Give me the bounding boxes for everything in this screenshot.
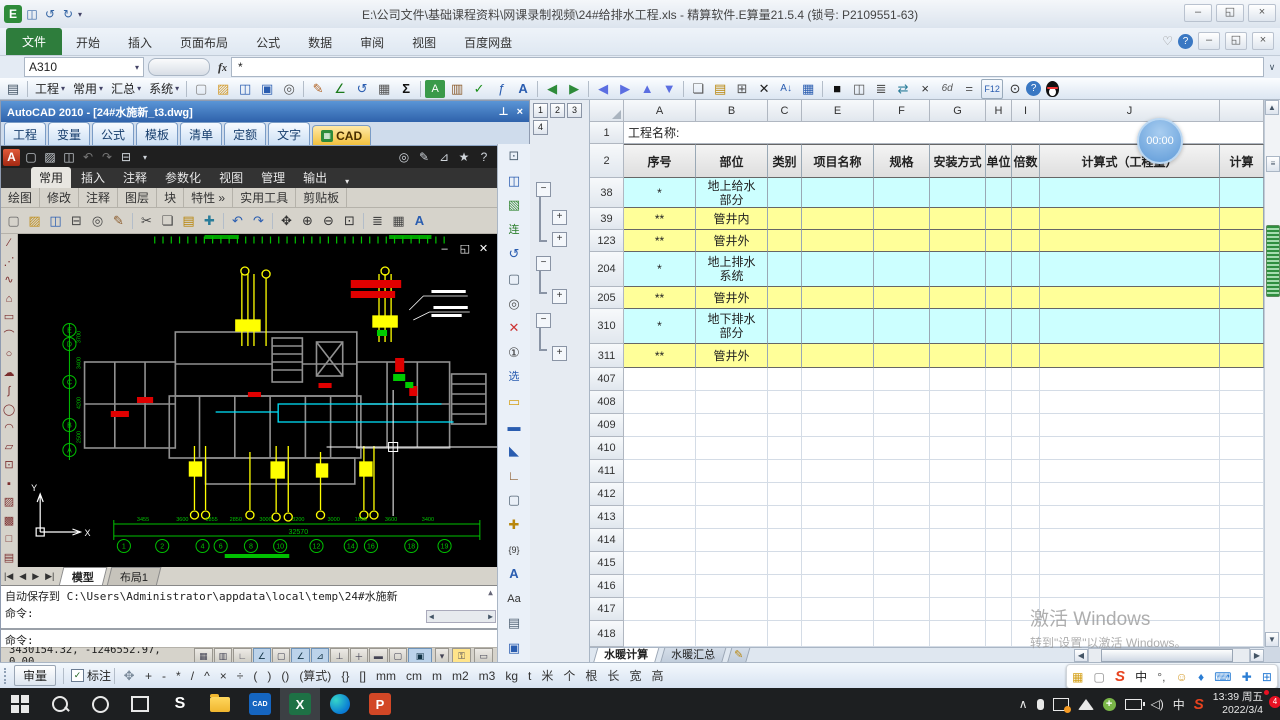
- make-block-icon[interactable]: ⊡: [4, 456, 13, 475]
- polygon-icon[interactable]: ⌂: [6, 290, 13, 309]
- grid-cell[interactable]: [986, 529, 1012, 552]
- header-cell[interactable]: 序号: [624, 144, 696, 178]
- header-cell[interactable]: 单位: [986, 144, 1012, 178]
- grid-cell[interactable]: [1012, 552, 1040, 575]
- cortana-button[interactable]: [80, 688, 120, 720]
- move-left-icon[interactable]: ◀: [593, 80, 613, 98]
- cad-app-button[interactable]: CAD: [240, 688, 280, 720]
- grid-cell[interactable]: [986, 414, 1012, 437]
- grid-cell[interactable]: [1220, 460, 1264, 483]
- grid-cell[interactable]: [802, 621, 874, 647]
- spline-icon[interactable]: ∫: [7, 382, 10, 401]
- column-header[interactable]: C: [768, 100, 802, 122]
- grid-cell[interactable]: [1040, 437, 1220, 460]
- grid-cell[interactable]: [802, 460, 874, 483]
- tray-wifi-icon[interactable]: [1078, 699, 1094, 710]
- tb-pan-icon[interactable]: ✥: [276, 211, 297, 231]
- first-layout-icon[interactable]: |◀: [1, 571, 16, 582]
- ime-mic-icon[interactable]: ♦: [1198, 670, 1204, 684]
- ime-skin-icon[interactable]: ✚: [1242, 670, 1252, 684]
- tab-wenzi[interactable]: 文字: [268, 122, 310, 145]
- unit-button[interactable]: 根: [580, 666, 602, 685]
- unit-button[interactable]: cm: [401, 668, 427, 684]
- column-header[interactable]: F: [874, 100, 930, 122]
- grid-cell[interactable]: [986, 368, 1012, 391]
- calculator-icon[interactable]: ▦: [374, 80, 394, 98]
- header-cell[interactable]: 计算: [1220, 144, 1264, 178]
- unit-button[interactable]: ^: [199, 668, 215, 684]
- grid-cell[interactable]: [1220, 529, 1264, 552]
- ellipse-icon[interactable]: ◯: [3, 401, 15, 420]
- grid-cell[interactable]: [624, 506, 696, 529]
- grid-cell[interactable]: [930, 529, 986, 552]
- grid-cell[interactable]: [1040, 414, 1220, 437]
- unit-button[interactable]: {}: [336, 668, 354, 684]
- tab-home[interactable]: 开始: [62, 30, 114, 55]
- grid-cell[interactable]: [1040, 483, 1220, 506]
- collapse-group-button[interactable]: −: [536, 182, 551, 197]
- tb-layers-icon[interactable]: ▦: [388, 211, 409, 231]
- row-number[interactable]: 408: [590, 391, 624, 414]
- drawing-close-icon[interactable]: ✕: [479, 243, 488, 255]
- grid-cell[interactable]: [768, 506, 802, 529]
- formula-input[interactable]: *: [231, 57, 1264, 77]
- grid-cell[interactable]: [1012, 391, 1040, 414]
- excel-app-button[interactable]: X: [280, 688, 320, 720]
- grid-cell[interactable]: [874, 621, 930, 647]
- qq-icon[interactable]: [1042, 80, 1062, 98]
- unit-button[interactable]: kg: [500, 668, 523, 684]
- unit-button[interactable]: t: [523, 668, 536, 684]
- grid-cell[interactable]: [696, 621, 768, 647]
- column-header[interactable]: H: [986, 100, 1012, 122]
- print-preview-icon[interactable]: ◎: [279, 80, 299, 98]
- grid-cell[interactable]: [696, 414, 768, 437]
- insert-block-icon[interactable]: ▱: [5, 438, 13, 457]
- collapse-group-button[interactable]: −: [536, 256, 551, 271]
- cad-qat-dropdown-icon[interactable]: ▾: [137, 153, 153, 162]
- angle-tool-icon[interactable]: ∟: [508, 464, 521, 489]
- expand-group-button[interactable]: +: [552, 346, 567, 361]
- seq-cell[interactable]: *: [624, 178, 696, 208]
- unit-button[interactable]: ): [262, 668, 276, 684]
- grid-cell[interactable]: [768, 598, 802, 621]
- grid-cell[interactable]: [1220, 178, 1264, 208]
- grid-cell[interactable]: [1012, 414, 1040, 437]
- qat-customize-icon[interactable]: ▾: [78, 10, 82, 19]
- grid-cell[interactable]: [1012, 598, 1040, 621]
- grid-cell[interactable]: [1040, 391, 1220, 414]
- scrollbar-thumb[interactable]: [1266, 225, 1280, 297]
- tb-save-icon[interactable]: ◫: [45, 211, 66, 231]
- menu-common[interactable]: 常用▾: [69, 78, 107, 99]
- grid-cell[interactable]: [1012, 287, 1040, 309]
- tb-properties-icon[interactable]: ≣: [367, 211, 388, 231]
- grid-cell[interactable]: [768, 575, 802, 598]
- restore-button[interactable]: ◱: [1216, 4, 1244, 22]
- tab-bianliang[interactable]: 变量: [48, 122, 90, 145]
- hscroll-right-icon[interactable]: ▶: [1250, 649, 1264, 662]
- grid-cell[interactable]: [1040, 598, 1220, 621]
- grid-cell[interactable]: [930, 287, 986, 309]
- tb-new-icon[interactable]: ▢: [3, 211, 24, 231]
- part-cell[interactable]: 管井内: [696, 208, 768, 230]
- row-number[interactable]: 417: [590, 598, 624, 621]
- grid-cell[interactable]: [874, 178, 930, 208]
- seq-cell[interactable]: *: [624, 309, 696, 344]
- ribbon-collapse-icon[interactable]: ▾: [337, 175, 357, 188]
- grid-cell[interactable]: [874, 460, 930, 483]
- grid-cell[interactable]: [1012, 460, 1040, 483]
- grid-cell[interactable]: [1040, 529, 1220, 552]
- ime-grid-icon[interactable]: ▦: [1072, 670, 1083, 684]
- tab-file[interactable]: 文件: [6, 28, 62, 55]
- tb-redo-icon[interactable]: ↷: [248, 211, 269, 231]
- grid-cell[interactable]: [1220, 252, 1264, 287]
- grid-cell[interactable]: [986, 552, 1012, 575]
- grid-cell[interactable]: [874, 598, 930, 621]
- ellipse-arc-icon[interactable]: ◠: [4, 419, 14, 438]
- cad-undo-icon[interactable]: ↶: [80, 150, 96, 164]
- redo-icon[interactable]: ↻: [60, 7, 76, 21]
- row-number[interactable]: 416: [590, 575, 624, 598]
- header-cell[interactable]: 类别: [768, 144, 802, 178]
- tb-zoom-window-icon[interactable]: ⊡: [339, 211, 360, 231]
- tab-page-layout[interactable]: 页面布局: [166, 30, 242, 55]
- unit-button[interactable]: 长: [602, 666, 624, 685]
- revcloud-icon[interactable]: ☁: [4, 364, 15, 383]
- ribbon-minimize-button[interactable]: –: [1198, 32, 1220, 50]
- row-number[interactable]: 205: [590, 287, 624, 309]
- header-cell[interactable]: 规格: [874, 144, 930, 178]
- grid-cell[interactable]: [930, 178, 986, 208]
- cadtab-view[interactable]: 视图: [211, 167, 251, 188]
- tb-print-icon[interactable]: ⊟: [66, 211, 87, 231]
- row-number[interactable]: 39: [590, 208, 624, 230]
- grid-cell[interactable]: [930, 414, 986, 437]
- part-cell[interactable]: 地下排水部分: [696, 309, 768, 344]
- grid-cell[interactable]: [624, 529, 696, 552]
- move-right-icon[interactable]: ▶: [615, 80, 635, 98]
- unit-button[interactable]: *: [171, 668, 186, 684]
- row-number[interactable]: 1: [590, 122, 624, 144]
- grid-cell[interactable]: [874, 309, 930, 344]
- grid-cell[interactable]: [930, 344, 986, 368]
- tab-formulas[interactable]: 公式: [242, 30, 294, 55]
- grid-cell[interactable]: [1012, 529, 1040, 552]
- hscroll-thumb[interactable]: [1101, 649, 1233, 662]
- help-icon[interactable]: ?: [1026, 81, 1041, 96]
- part-cell[interactable]: 管井外: [696, 287, 768, 309]
- grid-cell[interactable]: [768, 621, 802, 647]
- grid-cell[interactable]: [930, 208, 986, 230]
- row-number[interactable]: 411: [590, 460, 624, 483]
- panel-properties[interactable]: 特性 »: [184, 188, 233, 207]
- grid-cell[interactable]: [986, 287, 1012, 309]
- scroll-up-icon[interactable]: ▲: [1265, 100, 1279, 115]
- recording-timer[interactable]: 00:00: [1137, 118, 1183, 164]
- outline-level-2[interactable]: 2: [550, 103, 565, 118]
- cadtab-insert[interactable]: 插入: [73, 167, 113, 188]
- header-cell[interactable]: 部位: [696, 144, 768, 178]
- ruler-tool-icon[interactable]: ▭: [508, 390, 520, 415]
- grid-cell[interactable]: [768, 208, 802, 230]
- grid-cell[interactable]: [930, 309, 986, 344]
- search-button[interactable]: [40, 688, 80, 720]
- grid-cell[interactable]: [768, 460, 802, 483]
- grid-cell[interactable]: [696, 575, 768, 598]
- grid-cell[interactable]: [1040, 368, 1220, 391]
- tab-cad[interactable]: ▦CAD: [312, 125, 371, 145]
- grid-cell[interactable]: [768, 414, 802, 437]
- cad-open-icon[interactable]: ▨: [42, 150, 58, 164]
- grid-cell[interactable]: [930, 230, 986, 252]
- part-cell[interactable]: 管井外: [696, 344, 768, 368]
- grid-cell[interactable]: [930, 621, 986, 647]
- grid-cell[interactable]: [986, 460, 1012, 483]
- tray-sogou-icon[interactable]: S: [1194, 696, 1204, 713]
- undo-icon[interactable]: ↺: [42, 7, 58, 21]
- tb-cut-icon[interactable]: ✂: [136, 211, 157, 231]
- grid-cell[interactable]: [802, 368, 874, 391]
- ribbon-close-button[interactable]: ×: [1252, 32, 1274, 50]
- grid-cell[interactable]: [986, 506, 1012, 529]
- tb-text-icon[interactable]: A: [409, 211, 430, 231]
- header-cell[interactable]: 计算式（工程量）: [1040, 144, 1220, 178]
- tray-volume-icon[interactable]: ◁): [1151, 697, 1164, 711]
- scroll-down-icon[interactable]: ▼: [1265, 632, 1279, 647]
- connect-tool-icon[interactable]: 连: [509, 218, 520, 243]
- grid-cell[interactable]: [874, 208, 930, 230]
- grid-cell[interactable]: [1040, 309, 1220, 344]
- tray-ime-indicator[interactable]: 中: [1173, 696, 1185, 713]
- grid-cell[interactable]: [802, 529, 874, 552]
- row-number[interactable]: 204: [590, 252, 624, 287]
- insert-row-icon[interactable]: ⊞: [732, 80, 752, 98]
- row-number[interactable]: 410: [590, 437, 624, 460]
- grid-cell[interactable]: [768, 287, 802, 309]
- grid-cell[interactable]: [1220, 309, 1264, 344]
- unit-button[interactable]: +: [140, 668, 157, 684]
- cadtab-manage[interactable]: 管理: [253, 167, 293, 188]
- cad-help-icon[interactable]: ?: [476, 150, 492, 164]
- tab-qingdan[interactable]: 清单: [180, 122, 222, 145]
- tab-data[interactable]: 数据: [294, 30, 346, 55]
- table-icon[interactable]: ▦: [798, 80, 818, 98]
- move-down-icon[interactable]: ▼: [659, 80, 679, 98]
- image-tool-icon[interactable]: ▧: [508, 193, 520, 218]
- nav-forward-icon[interactable]: ▶: [564, 80, 584, 98]
- text-aa-tool-icon[interactable]: Aa: [507, 587, 520, 612]
- grid-cell[interactable]: [986, 575, 1012, 598]
- delete-icon[interactable]: ✕: [754, 80, 774, 98]
- tb-undo-icon[interactable]: ↶: [227, 211, 248, 231]
- grid-cell[interactable]: [802, 309, 874, 344]
- cad-redo-icon[interactable]: ↷: [99, 150, 115, 164]
- check-icon[interactable]: ✓: [469, 80, 489, 98]
- select-all-corner[interactable]: [590, 100, 624, 122]
- command-line[interactable]: 自动保存到 C:\Users\Administrator\appdata\loc…: [1, 585, 498, 647]
- grid-cell[interactable]: [1220, 208, 1264, 230]
- row-number[interactable]: 414: [590, 529, 624, 552]
- row-number[interactable]: 413: [590, 506, 624, 529]
- expand-group-button[interactable]: +: [552, 289, 567, 304]
- grid-cell[interactable]: [768, 552, 802, 575]
- line-icon[interactable]: ∕: [8, 234, 10, 253]
- grid-cell[interactable]: [768, 483, 802, 506]
- grid-cell[interactable]: [696, 391, 768, 414]
- grid-cell[interactable]: [1012, 437, 1040, 460]
- hatch-icon[interactable]: ▨: [4, 493, 14, 512]
- bar-tool-icon[interactable]: ▬: [508, 415, 521, 440]
- gradient-icon[interactable]: ▩: [4, 512, 14, 531]
- grid-cell[interactable]: [986, 437, 1012, 460]
- grid-cell[interactable]: [624, 621, 696, 647]
- column-header[interactable]: G: [930, 100, 986, 122]
- grid-cell[interactable]: [1040, 552, 1220, 575]
- new-icon[interactable]: ▢: [191, 80, 211, 98]
- minimize-button[interactable]: –: [1184, 4, 1212, 22]
- app-logo-icon[interactable]: E: [4, 5, 22, 23]
- menu-summary[interactable]: 汇总▾: [107, 78, 145, 99]
- grid-cell[interactable]: [986, 178, 1012, 208]
- grid-cell[interactable]: [696, 598, 768, 621]
- fx-function-icon[interactable]: ƒ: [491, 80, 511, 98]
- grid-cell[interactable]: [1012, 309, 1040, 344]
- outline-level-3[interactable]: 3: [567, 103, 582, 118]
- design-icon[interactable]: ✎: [308, 80, 328, 98]
- ime-window-icon[interactable]: ▢: [1094, 670, 1105, 684]
- grid-cell[interactable]: [696, 437, 768, 460]
- edge-browser-button[interactable]: [320, 688, 360, 720]
- cad-new-icon[interactable]: ▢: [23, 150, 39, 164]
- grid-cell[interactable]: [624, 552, 696, 575]
- unit-button[interactable]: (: [248, 668, 262, 684]
- tb-copy-icon[interactable]: ❏: [157, 211, 178, 231]
- part-cell[interactable]: 地上给水部分: [696, 178, 768, 208]
- grid-cell[interactable]: [986, 208, 1012, 230]
- grid-cell[interactable]: [874, 529, 930, 552]
- merge-cells-icon[interactable]: ◫: [849, 80, 869, 98]
- grid-cell[interactable]: [930, 252, 986, 287]
- panel-modify[interactable]: 修改: [40, 188, 79, 207]
- unit-button[interactable]: (): [276, 668, 294, 684]
- target-tool-icon[interactable]: ▣: [508, 636, 520, 661]
- grid-cell[interactable]: [696, 529, 768, 552]
- start-button[interactable]: [0, 688, 40, 720]
- heart-icon[interactable]: ♡: [1162, 34, 1173, 48]
- grid-cell[interactable]: [874, 552, 930, 575]
- grid-cell[interactable]: [624, 414, 696, 437]
- arc-icon[interactable]: ⌒: [4, 327, 15, 346]
- cadtab-annotate[interactable]: 注释: [115, 167, 155, 188]
- unit-button[interactable]: 个: [558, 666, 580, 685]
- grid-cell[interactable]: [624, 598, 696, 621]
- grid-cell[interactable]: [802, 598, 874, 621]
- taskbar-clock[interactable]: 13:39 周五 2022/3/4: [1213, 691, 1267, 717]
- frame-tool-icon[interactable]: ⊡: [509, 144, 520, 169]
- grid-cell[interactable]: [1220, 437, 1264, 460]
- point-icon[interactable]: ▪: [7, 475, 11, 494]
- panel-draw[interactable]: 绘图: [1, 188, 40, 207]
- cad-canvas[interactable]: EDCBA 12468101214161819 3455360018552850…: [18, 234, 498, 567]
- tab-layout1[interactable]: 布局1: [107, 567, 162, 586]
- cadtab-parametric[interactable]: 参数化: [157, 167, 209, 188]
- row-number[interactable]: 2: [590, 144, 624, 178]
- grid-cell[interactable]: [986, 252, 1012, 287]
- unit-button[interactable]: ÷: [232, 668, 249, 684]
- tab-model[interactable]: 模型: [59, 567, 108, 586]
- grid-cell[interactable]: [696, 506, 768, 529]
- cmd-hscrollbar[interactable]: ◀▶: [426, 610, 496, 623]
- grid-cell[interactable]: [1220, 287, 1264, 309]
- grid-cell[interactable]: [930, 483, 986, 506]
- grid-cell[interactable]: [1012, 368, 1040, 391]
- grid-cell[interactable]: [768, 344, 802, 368]
- nine-tool-icon[interactable]: {9}: [508, 538, 519, 563]
- grid-cell[interactable]: [1220, 344, 1264, 368]
- grid-cell[interactable]: [1012, 252, 1040, 287]
- grid-cell[interactable]: [930, 575, 986, 598]
- ime-keyboard-icon[interactable]: ⌨: [1214, 670, 1231, 684]
- grid-cell[interactable]: [930, 437, 986, 460]
- outline-level-4[interactable]: 4: [533, 120, 548, 135]
- text-a-tool-icon[interactable]: A: [509, 562, 518, 587]
- polyline-icon[interactable]: ∿: [4, 271, 13, 290]
- tb-preview-icon[interactable]: ◎: [87, 211, 108, 231]
- grid-cell[interactable]: [768, 178, 802, 208]
- collapse-group-button[interactable]: −: [536, 313, 551, 328]
- prev-layout-icon[interactable]: ◀: [16, 571, 29, 582]
- grid-cell[interactable]: [802, 252, 874, 287]
- menu-project[interactable]: 工程▾: [31, 78, 69, 99]
- grid-cell[interactable]: [874, 252, 930, 287]
- grid-cell[interactable]: [768, 391, 802, 414]
- cad-plot-icon[interactable]: ⊟: [118, 150, 134, 164]
- grid-cell[interactable]: [930, 368, 986, 391]
- grid-cell[interactable]: [874, 287, 930, 309]
- grid-cell[interactable]: [874, 414, 930, 437]
- wedge-tool-icon[interactable]: ◣: [509, 439, 519, 464]
- ribbon-restore-button[interactable]: ◱: [1225, 32, 1247, 50]
- grid-cell[interactable]: [986, 309, 1012, 344]
- tab-dinge[interactable]: 定额: [224, 122, 266, 145]
- f12-icon[interactable]: F12: [981, 79, 1003, 99]
- grid-cell[interactable]: [930, 552, 986, 575]
- tb-zoom-in-icon[interactable]: ⊕: [297, 211, 318, 231]
- paste-op-icon[interactable]: ✥: [119, 667, 139, 685]
- grid-cell[interactable]: [802, 391, 874, 414]
- column-header[interactable]: B: [696, 100, 768, 122]
- unit-button[interactable]: 宽: [624, 666, 646, 685]
- grid-cell[interactable]: [874, 344, 930, 368]
- area-text-icon[interactable]: A: [425, 80, 445, 98]
- grid-cell[interactable]: [768, 368, 802, 391]
- annotate-checkbox[interactable]: ✓: [71, 669, 84, 682]
- book-icon[interactable]: ▥: [447, 80, 467, 98]
- grid-cell[interactable]: [696, 460, 768, 483]
- clock-icon[interactable]: ⊙: [1005, 80, 1025, 98]
- grid-cell[interactable]: [768, 529, 802, 552]
- grid-cell[interactable]: [802, 437, 874, 460]
- grid-cell[interactable]: [1220, 598, 1264, 621]
- list-icon[interactable]: ≣: [871, 80, 891, 98]
- tray-expand-icon[interactable]: ∧: [1019, 697, 1028, 711]
- hscroll-left-icon[interactable]: ◀: [1074, 649, 1088, 662]
- grid-cell[interactable]: [1220, 506, 1264, 529]
- last-layout-icon[interactable]: ▶|: [42, 571, 57, 582]
- cad-wrench-icon[interactable]: ✎: [416, 150, 432, 164]
